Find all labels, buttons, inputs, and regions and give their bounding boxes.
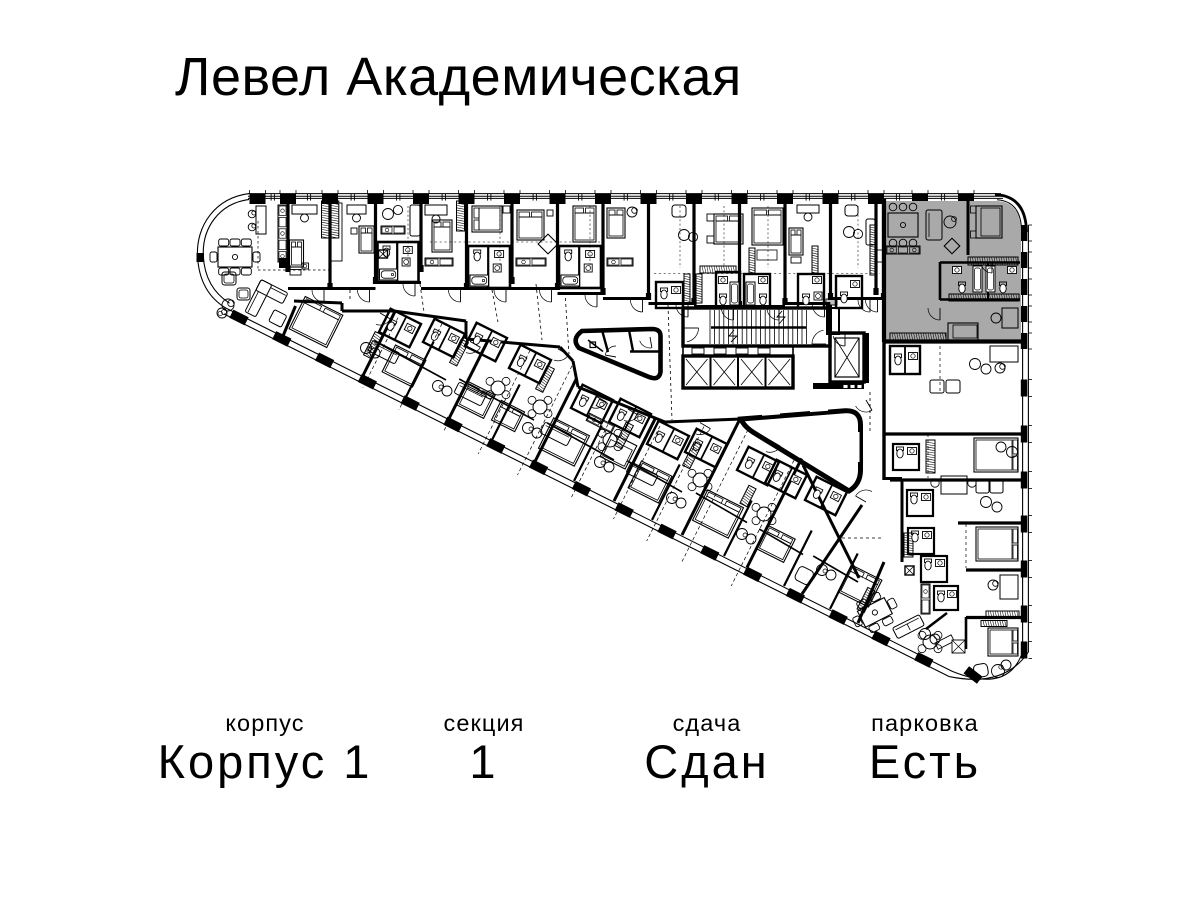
svg-text:секция: секция	[443, 710, 524, 736]
svg-text:1: 1	[469, 735, 498, 788]
svg-text:Корпус 1: Корпус 1	[158, 735, 373, 788]
svg-text:Есть: Есть	[869, 735, 981, 788]
svg-text:Левел Академическая: Левел Академическая	[175, 47, 742, 107]
svg-text:сдача: сдача	[673, 710, 742, 736]
svg-text:корпус: корпус	[225, 710, 304, 736]
svg-text:парковка: парковка	[871, 710, 979, 736]
svg-text:Сдан: Сдан	[644, 735, 769, 788]
